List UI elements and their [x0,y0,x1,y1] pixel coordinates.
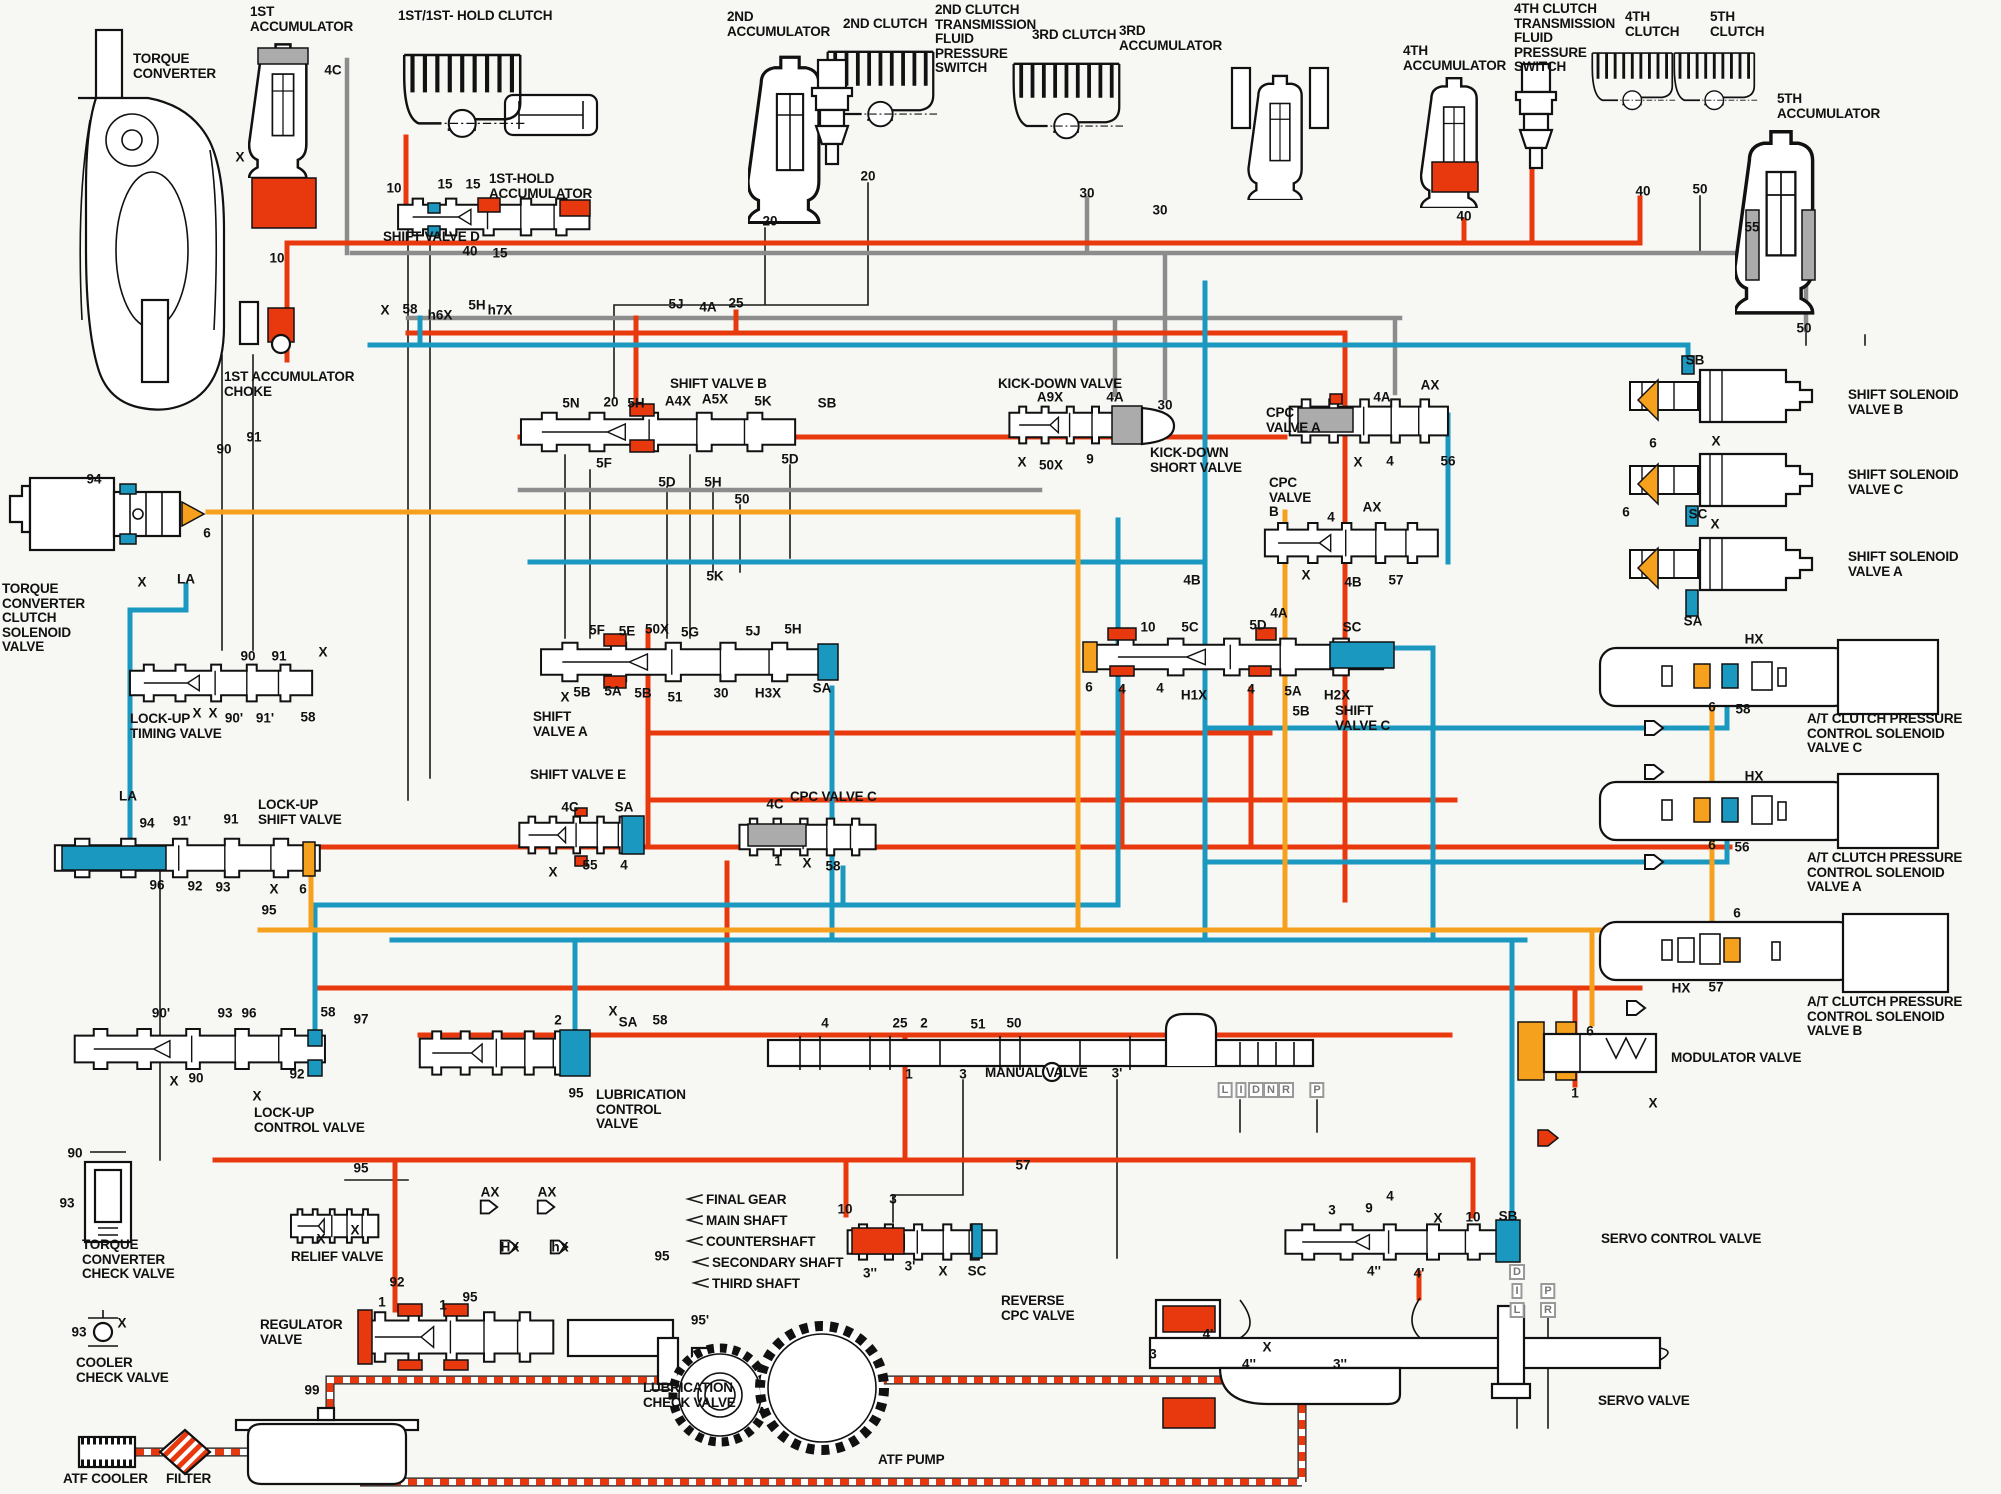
component-label-3rd-clutch: 3RD CLUTCH [1032,28,1116,43]
port-label-x: X [117,1316,126,1331]
port-label-x: X [1648,1096,1657,1111]
component-label-tc-clutch-solenoid-valve: TORQUE CONVERTER CLUTCH SOLENOID VALVE [2,582,85,655]
port-label-x: X [1353,455,1362,470]
component-label-cpc-valve-a: CPC VALVE A [1266,406,1321,435]
port-label-ax: AX [1363,500,1382,515]
component-label-4th-clutch-pressure-switch: 4TH CLUTCH TRANSMISSION FLUID PRESSURE S… [1514,2,1615,75]
port-label-95: 95 [353,1161,368,1176]
port-label-2: 2 [920,1016,928,1031]
port-label-15: 15 [465,177,480,192]
port-label-4: 4 [1156,681,1164,696]
component-label-at-cpc-solenoid-valve-a: A/T CLUTCH PRESSURE CONTROL SOLENOID VAL… [1807,851,1962,895]
port-label-1: 1 [1571,1086,1579,1101]
port-label-4: 4 [1386,454,1394,469]
range-box-i: I [1511,1283,1522,1299]
port-label-5h: 5H [468,298,485,313]
port-label-x: X [608,1004,617,1019]
port-label-55: 55 [582,858,597,873]
port-label-4a: 4A [1373,390,1390,405]
port-label-sa: SA [619,1015,638,1030]
port-label-15: 15 [437,177,452,192]
port-label-10: 10 [837,1202,852,1217]
port-label-x: X [350,1223,359,1238]
port-label-hx: hX [551,1240,568,1255]
port-label-4': 4' [1203,1327,1214,1342]
port-label-3: 3 [889,1192,897,1207]
port-label-4a: 4A [699,300,716,315]
port-label-3'': 3'' [1333,1357,1347,1372]
port-label-6: 6 [1708,700,1716,715]
port-label-25: 25 [892,1016,907,1031]
component-label-at-cpc-solenoid-valve-b: A/T CLUTCH PRESSURE CONTROL SOLENOID VAL… [1807,995,1962,1039]
port-label-x: X [938,1264,947,1279]
port-label-5k: 5K [706,569,723,584]
component-label-manual-valve: MANUAL VALVE [985,1066,1088,1081]
component-label-relief-valve: RELIEF VALVE [291,1250,383,1265]
component-label-servo-valve: SERVO VALVE [1598,1394,1690,1409]
port-label-95': 95' [691,1313,709,1328]
port-label-5f: 5F [596,456,612,471]
port-label-hx: HX [1745,769,1764,784]
component-label-countershaft: COUNTERSHAFT [706,1235,815,1250]
component-label-torque-converter: TORQUE CONVERTER [133,52,216,81]
port-label-sa: SA [1684,614,1703,629]
port-label-56: 56 [1734,840,1749,855]
port-label-h1x: H1X [1181,688,1207,703]
port-label-5k: 5K [754,394,771,409]
component-label-lubrication-control-valve: LUBRICATION CONTROL VALVE [596,1088,686,1132]
component-label-2nd-clutch-pressure-switch: 2ND CLUTCH TRANSMISSION FLUID PRESSURE S… [935,3,1036,76]
component-label-modulator-valve: MODULATOR VALVE [1671,1051,1801,1066]
port-label-a4x: A4X [665,394,691,409]
port-label-92: 92 [389,1275,404,1290]
port-label-x: X [1301,568,1310,583]
component-label-1st-hold-accumulator: 1ST-HOLD ACCUMULATOR [489,172,592,201]
port-label-4'': 4'' [1242,1357,1256,1372]
port-label-90: 90 [67,1146,82,1161]
port-label-hx: HX [1745,632,1764,647]
port-label-6: 6 [1586,1024,1594,1039]
port-label-4c: 4C [766,797,783,812]
port-label-6: 6 [203,526,211,541]
component-label-main-shaft: MAIN SHAFT [706,1214,787,1229]
port-label-57: 57 [1708,980,1723,995]
port-label-50: 50 [1796,321,1811,336]
component-label-2nd-accumulator: 2ND ACCUMULATOR [727,10,830,39]
port-label-97: 97 [353,1012,368,1027]
label-layer: TORQUE CONVERTER1ST ACCUMULATOR1ST/1ST- … [0,0,2001,1494]
port-label-15: 15 [492,246,507,261]
component-label-third-shaft: THIRD SHAFT [712,1277,800,1292]
port-label-x: X [316,1232,325,1247]
port-label-5c: 5C [1181,620,1198,635]
port-label-5b: 5B [1292,704,1309,719]
component-label-shift-solenoid-valve-c: SHIFT SOLENOID VALVE C [1848,468,1958,497]
port-label-1: 1 [905,1067,913,1082]
component-label-5th-clutch: 5TH CLUTCH [1710,10,1764,39]
port-label-1: 1 [439,1298,447,1313]
component-label-torque-converter-check-valve: TORQUE CONVERTER CHECK VALVE [82,1238,175,1282]
port-label-x: X [208,706,217,721]
port-label-x: X [1710,517,1719,532]
port-label-3': 3' [905,1259,916,1274]
port-label-4a: 4A [1106,390,1123,405]
port-label-50: 50 [1692,182,1707,197]
port-label-5a: 5A [1284,684,1301,699]
port-label-5f: 5F [589,623,605,638]
port-label-20: 20 [860,169,875,184]
port-label-x: X [1017,455,1026,470]
port-label-50: 50 [734,492,749,507]
port-label-93: 93 [71,1325,86,1340]
range-box-r: R [1540,1302,1556,1318]
component-label-atf-pump: ATF PUMP [878,1453,944,1468]
port-label-x: X [192,706,201,721]
port-label-50x: 50X [645,622,669,637]
port-label-93: 93 [215,880,230,895]
component-label-at-cpc-solenoid-valve-c: A/T CLUTCH PRESSURE CONTROL SOLENOID VAL… [1807,712,1962,756]
port-label-x: X [1433,1211,1442,1226]
component-label-servo-control-valve: SERVO CONTROL VALVE [1601,1232,1761,1247]
port-label-5d: 5D [658,475,675,490]
port-label-10: 10 [269,251,284,266]
port-label-4'': 4'' [1367,1264,1381,1279]
port-label-sb: SB [818,396,837,411]
component-label-lubrication-check-valve: LUBRICATION CHECK VALVE [643,1381,736,1410]
port-label-5e: 5E [619,624,636,639]
port-label-sb: SB [1499,1209,1518,1224]
port-label-6: 6 [1708,838,1716,853]
port-label-x: X [137,575,146,590]
component-label-shift-valve-a: SHIFT VALVE A [533,710,588,739]
port-label-93: 93 [217,1006,232,1021]
port-label-5d: 5D [781,452,798,467]
port-label-95: 95 [654,1249,669,1264]
port-label-30: 30 [1152,203,1167,218]
port-label-x: X [318,645,327,660]
port-label-57: 57 [1015,1158,1030,1173]
port-label-51: 51 [970,1017,985,1032]
port-label-3: 3 [959,1067,967,1082]
port-label-92: 92 [289,1067,304,1082]
port-label-sc: SC [1343,620,1362,635]
port-label-10: 10 [386,181,401,196]
port-label-58: 58 [402,302,417,317]
port-label-91: 91 [246,430,261,445]
port-label-sa: SA [615,800,634,815]
component-label-4th-accumulator: 4TH ACCUMULATOR [1403,44,1506,73]
port-label-57: 57 [1388,573,1403,588]
port-label-20: 20 [603,395,618,410]
port-label-5j: 5J [745,624,760,639]
component-label-regulator-valve: REGULATOR VALVE [260,1318,342,1347]
port-label-5h: 5H [704,475,721,490]
component-label-1st-accumulator: 1ST ACCUMULATOR [250,5,353,34]
port-label-5g: 5G [681,625,699,640]
component-label-secondary-shaft: SECONDARY SHAFT [712,1256,843,1271]
port-label-6: 6 [299,882,307,897]
port-label-x: X [269,882,278,897]
port-label-x: X [252,1089,261,1104]
port-label-50: 50 [1006,1016,1021,1031]
port-label-90: 90 [216,442,231,457]
port-label-4: 4 [821,1016,829,1031]
component-label-5th-accumulator: 5TH ACCUMULATOR [1777,92,1880,121]
port-label-90: 90 [188,1071,203,1086]
port-label-91': 91' [256,711,274,726]
component-label-2nd-clutch: 2ND CLUTCH [843,17,927,32]
port-label-92: 92 [187,879,202,894]
port-label-96: 96 [149,878,164,893]
port-label-58: 58 [825,859,840,874]
component-label-shift-solenoid-valve-a: SHIFT SOLENOID VALVE A [1848,550,1958,579]
port-label-58: 58 [1735,702,1750,717]
component-label-3rd-accumulator: 3RD ACCUMULATOR [1119,24,1222,53]
port-label-58: 58 [320,1005,335,1020]
port-label-5j: 5J [668,297,683,312]
port-label-la: LA [177,572,195,587]
port-label-93: 93 [59,1196,74,1211]
port-label-94: 94 [139,816,154,831]
port-label-4c: 4C [324,63,341,78]
port-label-sc: SC [1689,507,1708,522]
port-label-a5x: A5X [702,392,728,407]
port-label-90': 90' [225,711,243,726]
hydraulic-circuit-diagram: TORQUE CONVERTER1ST ACCUMULATOR1ST/1ST- … [0,0,2001,1494]
port-label-ax: AX [1421,378,1440,393]
component-label-filter: FILTER [166,1472,211,1487]
port-label-h2x: H2X [1324,688,1350,703]
port-label-x: X [802,856,811,871]
range-box-d: D [1509,1264,1525,1280]
port-label-x: X [380,303,389,318]
component-label-4th-clutch: 4TH CLUTCH [1625,10,1679,39]
port-label-ax: AX [538,1185,557,1200]
port-label-4: 4 [1386,1189,1394,1204]
port-label-3': 3' [1112,1066,1123,1081]
port-label-96: 96 [241,1006,256,1021]
port-label-10: 10 [1465,1210,1480,1225]
port-label-3'': 3'' [863,1266,877,1281]
port-label-sb: SB [1686,353,1705,368]
port-label-6: 6 [1085,680,1093,695]
port-label-h6x: h6X [428,308,453,323]
component-label-shift-valve-b: SHIFT VALVE B [670,377,767,392]
port-label-56: 56 [1440,454,1455,469]
port-label-h7x: h7X [488,303,513,318]
port-label-9: 9 [1365,1201,1373,1216]
port-label-58: 58 [652,1013,667,1028]
port-label-5b: 5B [573,685,590,700]
port-label-25: 25 [728,296,743,311]
port-label-51: 51 [667,690,682,705]
component-label-shift-valve-e: SHIFT VALVE E [530,768,626,783]
range-box-n: N [1263,1082,1279,1098]
component-label-lock-up-shift-valve: LOCK-UP SHIFT VALVE [258,798,342,827]
port-label-3: 3 [1328,1203,1336,1218]
port-label-40: 40 [1635,184,1650,199]
component-label-1st-accumulator-choke: 1ST ACCUMULATOR CHOKE [224,370,354,399]
port-label-50x: 50X [1039,458,1063,473]
port-label-94: 94 [86,472,101,487]
port-label-x: X [560,690,569,705]
port-label-91: 91 [223,812,238,827]
range-box-l: L [1218,1082,1233,1098]
component-label-cooler-check-valve: COOLER CHECK VALVE [76,1356,169,1385]
port-label-4b: 4B [1183,573,1200,588]
port-label-40: 40 [1456,209,1471,224]
port-label-1: 1 [774,854,782,869]
component-label-reverse-cpc-valve: REVERSE CPC VALVE [1001,1294,1074,1323]
range-box-l: L [1510,1302,1525,1318]
port-label-5h: 5H [784,622,801,637]
port-label-5b: 5B [634,686,651,701]
port-label-20: 20 [762,214,777,229]
component-label-shift-solenoid-valve-b: SHIFT SOLENOID VALVE B [1848,388,1958,417]
port-label-hx: HX [501,1240,520,1255]
port-label-6: 6 [1622,505,1630,520]
port-label-h3x: H3X [755,686,781,701]
port-label-x: X [1262,1340,1271,1355]
range-box-d: D [1248,1082,1264,1098]
port-label-58: 58 [300,710,315,725]
port-label-la: LA [119,789,137,804]
component-label-atf-cooler: ATF COOLER [63,1472,148,1487]
port-label-hx: HX [1672,981,1691,996]
range-box-i: I [1235,1082,1246,1098]
port-label-a9x: A9X [1037,390,1063,405]
component-label-final-gear: FINAL GEAR [706,1193,786,1208]
port-label-x: X [1711,434,1720,449]
port-label-10: 10 [1140,620,1155,635]
port-label-x: X [235,150,244,165]
component-label-shift-valve-d: SHIFT VALVE D [383,230,480,245]
port-label-5n: 5N [562,396,579,411]
port-label-3: 3 [1149,1347,1157,1362]
port-label-4: 4 [1247,682,1255,697]
component-label-lock-up-control-valve: LOCK-UP CONTROL VALVE [254,1106,365,1135]
range-box-r: R [1278,1082,1294,1098]
port-label-95: 95 [568,1086,583,1101]
component-label-cpc-valve-b: CPC VALVE B [1269,476,1311,520]
port-label-4: 4 [620,858,628,873]
range-box-p: P [1540,1283,1555,1299]
port-label-4c: 4C [561,800,578,815]
port-label-30: 30 [1157,398,1172,413]
port-label-x: X [548,865,557,880]
port-label-2: 2 [554,1013,562,1028]
range-box-p: P [1309,1082,1324,1098]
port-label-99: 99 [304,1383,319,1398]
port-label-95: 95 [261,903,276,918]
port-label-4b: 4B [1344,575,1361,590]
port-label-1: 1 [378,1295,386,1310]
port-label-5a: 5A [604,684,621,699]
port-label-9: 9 [1086,452,1094,467]
port-label-55: 55 [1744,220,1759,235]
port-label-4a: 4A [1270,606,1287,621]
port-label-30: 30 [713,686,728,701]
port-label-x: X [169,1074,178,1089]
component-label-1st-1st-hold-clutch: 1ST/1ST- HOLD CLUTCH [398,9,552,24]
port-label-sc: SC [968,1264,987,1279]
port-label-4: 4 [1118,682,1126,697]
port-label-5h: 5H [627,396,644,411]
component-label-shift-valve-c: SHIFT VALVE C [1335,704,1390,733]
port-label-90: 90 [240,649,255,664]
port-label-95: 95 [462,1290,477,1305]
port-label-6: 6 [1649,436,1657,451]
port-label-91': 91' [173,814,191,829]
component-label-cpc-valve-c: CPC VALVE C [790,790,877,805]
port-label-91: 91 [271,649,286,664]
port-label-6: 6 [1733,906,1741,921]
port-label-30: 30 [1079,186,1094,201]
port-label-40: 40 [462,244,477,259]
port-label-5d: 5D [1249,618,1266,633]
port-label-ax: AX [481,1185,500,1200]
component-label-kick-down-short-valve: KICK-DOWN SHORT VALVE [1150,446,1242,475]
port-label-4': 4' [1414,1266,1425,1281]
port-label-sa: SA [813,681,832,696]
port-label-90': 90' [152,1006,170,1021]
port-label-4: 4 [1327,510,1335,525]
